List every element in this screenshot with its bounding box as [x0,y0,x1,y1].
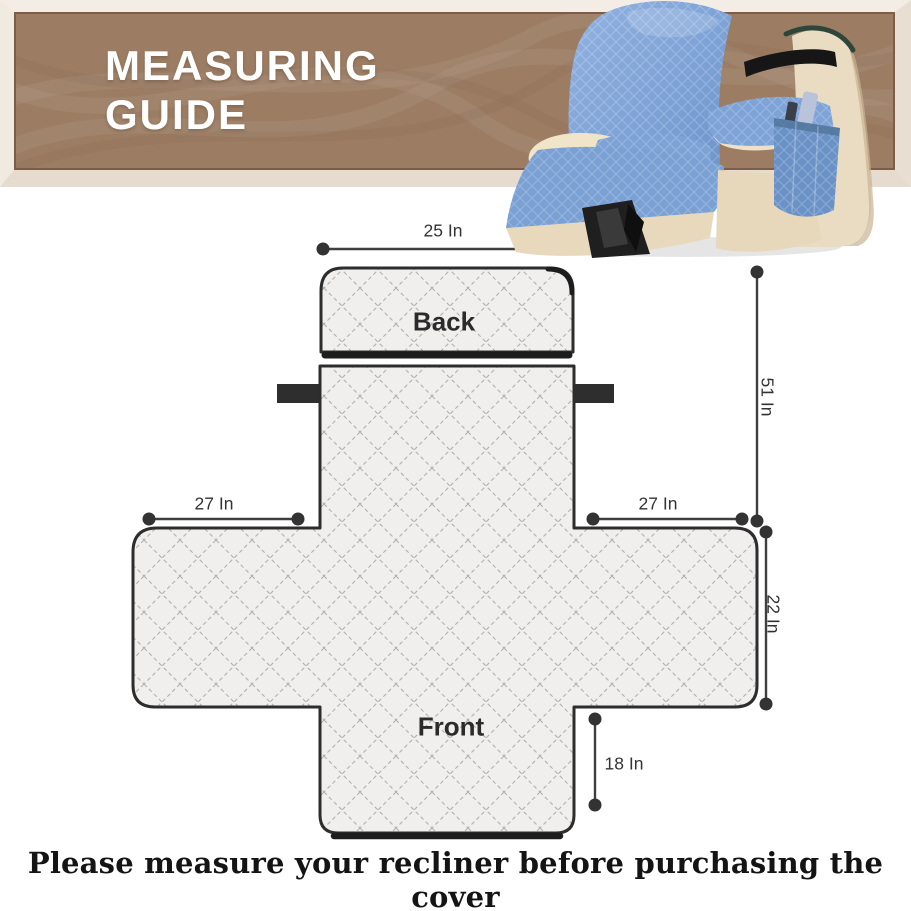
dim-right-wing-label: 27 In [639,494,678,515]
dim-back-width-label: 25 In [424,221,463,242]
dim-seat-side-label: 22 In [763,595,784,634]
recliner-photo [478,0,878,258]
footer-note: Please measure your recliner before purc… [0,846,911,911]
right-strap [572,384,614,403]
left-strap [277,384,322,403]
front-piece-label: Front [418,712,484,743]
front-piece [133,366,757,836]
back-piece-label: Back [413,307,475,338]
measuring-guide-page: MEASURING GUIDE [0,0,911,911]
dim-left-wing-label: 27 In [195,494,234,515]
dim-total-length-label: 51 In [757,378,778,417]
dim-front-drop-label: 18 In [605,754,644,775]
